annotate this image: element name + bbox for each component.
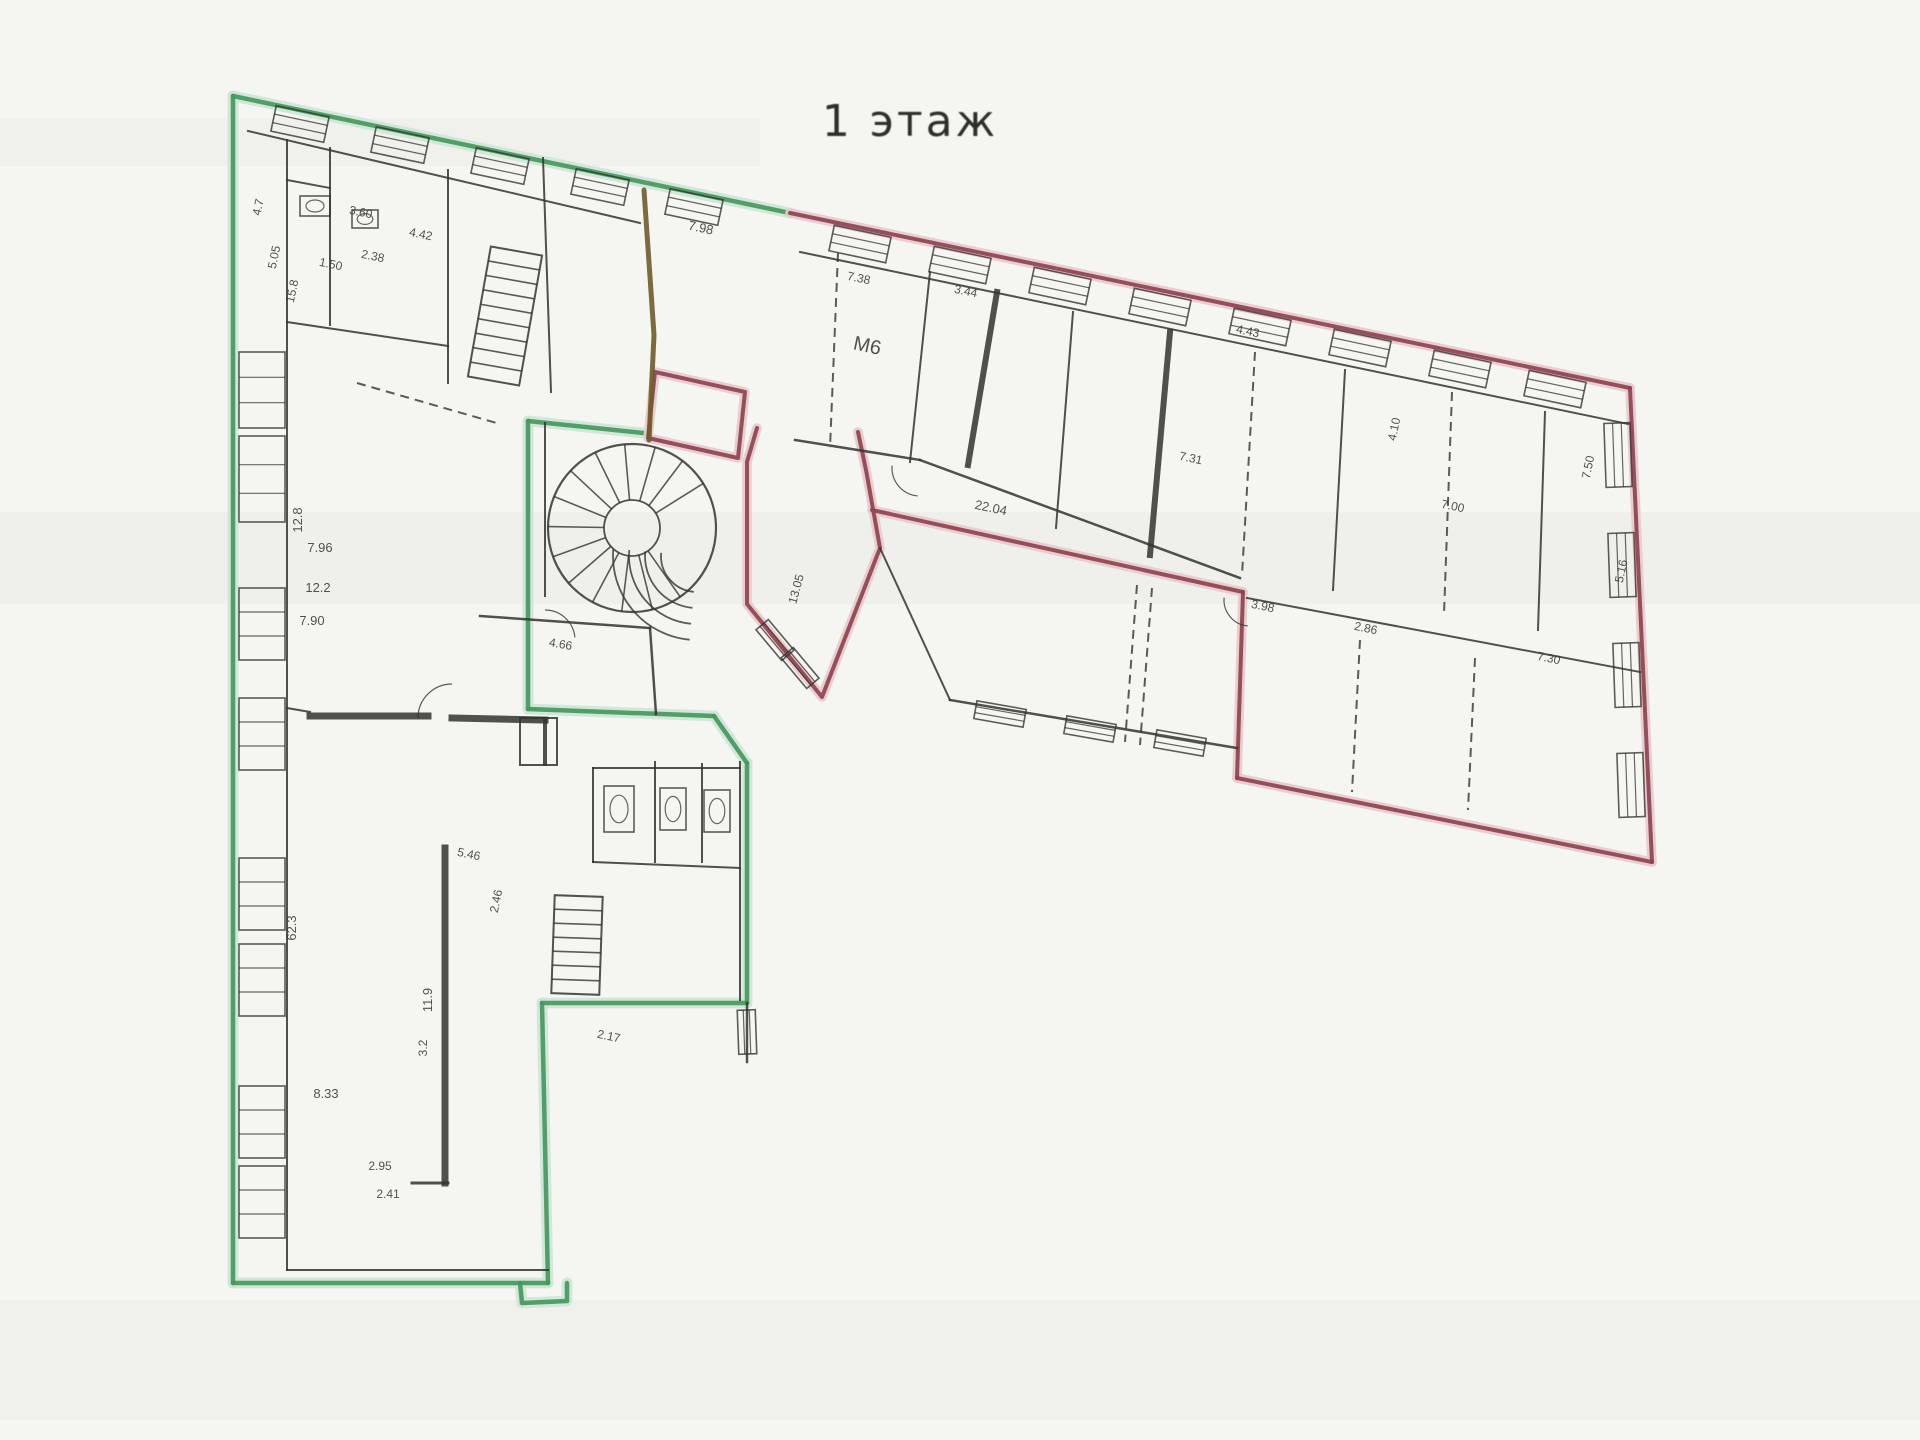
window-symbol — [1617, 753, 1645, 818]
window-symbol — [239, 698, 285, 770]
staircase — [468, 246, 542, 385]
dashed-wall-line — [830, 253, 838, 448]
dimension-label: 4.43 — [1235, 322, 1261, 341]
plumbing-fixture — [704, 790, 730, 832]
window-line — [239, 436, 285, 522]
plumbing-fixture-bowl — [610, 795, 628, 823]
window-line — [743, 1010, 745, 1054]
dimension-label: 4.66 — [548, 635, 574, 653]
wall-line — [287, 708, 310, 712]
wall-line — [593, 862, 740, 868]
plumbing-fixture — [300, 196, 330, 216]
stair-line — [476, 333, 527, 342]
window-line — [667, 206, 720, 217]
dimension-label: 15.8 — [283, 278, 302, 304]
spiral-tread — [640, 447, 655, 501]
window-symbol — [239, 1086, 285, 1158]
window-symbol — [239, 436, 285, 522]
stair-line — [552, 965, 600, 967]
window-line — [573, 186, 626, 197]
wall-line — [287, 322, 448, 346]
dimension-label: 3.2 — [416, 1039, 430, 1056]
dashed-wall-line — [357, 383, 500, 424]
stair-line — [481, 304, 532, 313]
stair-line — [553, 951, 601, 953]
dimension-label: 4.7 — [250, 197, 267, 217]
stair-line — [553, 937, 601, 939]
wall-line — [543, 158, 551, 392]
plumbing-fixture-bowl — [665, 796, 681, 821]
window-line — [239, 1166, 285, 1238]
dimension-label: 1.50 — [318, 255, 344, 274]
plan-layers: 4.75.0515.83.602.381.504.427.987.383.44М… — [0, 96, 1920, 1420]
red-boundary — [790, 213, 1630, 388]
stair-line — [470, 362, 521, 371]
dimension-label: 3.44 — [953, 282, 979, 301]
dimension-label: 12.2 — [305, 580, 330, 595]
wall-line — [910, 272, 930, 462]
plumbing-fixture — [660, 788, 686, 830]
floor-plan-page: 1 этаж 4.75.0515.83.602.381.504.427.987.… — [0, 0, 1920, 1440]
shaft-box — [520, 718, 557, 765]
plumbing-fixture-bowl — [306, 200, 324, 212]
window-line — [1634, 753, 1636, 817]
stair-line — [473, 348, 524, 357]
spiral-tread — [625, 444, 630, 500]
window-line — [239, 352, 285, 428]
dimension-label: 7.31 — [1178, 449, 1204, 468]
red-boundary-halo — [648, 372, 745, 458]
dimension-label: 2.41 — [376, 1187, 400, 1201]
dimension-label: 7.38 — [846, 269, 872, 288]
dimension-label: 2.17 — [596, 1027, 622, 1046]
wall-line — [950, 700, 1237, 748]
dimension-label: 11.9 — [420, 988, 435, 1012]
stair-line — [468, 246, 542, 385]
spiral-tread — [571, 471, 612, 509]
dimension-label: 7.98 — [687, 218, 715, 238]
window-symbol — [1613, 643, 1641, 708]
plumbing-fixture — [604, 786, 634, 832]
stair-line — [478, 319, 529, 328]
stair-line — [486, 275, 537, 284]
window-line — [749, 1010, 751, 1054]
floor-plan-drawing: 4.75.0515.83.602.381.504.427.987.383.44М… — [0, 0, 1920, 1440]
dimension-label: 7.96 — [307, 540, 332, 555]
door-swing-arc — [892, 466, 918, 496]
staircase — [551, 895, 602, 995]
stair-line — [552, 979, 600, 981]
plumbing-fixture-bowl — [709, 798, 725, 823]
dimension-label: 62.3 — [284, 915, 299, 940]
dimension-label: 5.05 — [265, 244, 284, 270]
dimension-label: М6 — [851, 332, 883, 359]
dimension-label: 7.50 — [1579, 454, 1598, 480]
window-symbol — [239, 352, 285, 428]
dimension-label: 5.46 — [456, 845, 482, 864]
dimension-label: 8.33 — [313, 1086, 338, 1101]
green-boundary — [714, 716, 747, 763]
spiral-tread — [595, 453, 620, 503]
door-swing-arc — [545, 610, 575, 637]
window-line — [239, 698, 285, 770]
window-line — [1630, 643, 1632, 707]
dashed-wall-line — [1468, 658, 1475, 810]
dashed-wall-line — [1125, 585, 1137, 742]
spiral-tread — [548, 527, 604, 528]
stair-line — [488, 261, 539, 270]
wall-line — [1056, 312, 1073, 528]
stair-line — [554, 909, 602, 911]
window-line — [239, 944, 285, 1016]
window-line — [239, 1086, 285, 1158]
window-line — [1617, 753, 1645, 818]
wall-line — [800, 252, 1628, 424]
window-line — [1622, 643, 1624, 707]
dashed-wall-line — [1352, 640, 1360, 792]
window-symbol — [1154, 730, 1206, 756]
wall-line — [287, 180, 330, 188]
dimension-label: 2.38 — [360, 247, 386, 266]
stair-line — [554, 923, 602, 925]
window-line — [1621, 423, 1623, 487]
scan-band — [0, 1300, 1920, 1420]
window-symbol — [239, 1166, 285, 1238]
wall-line — [650, 628, 656, 714]
window-line — [764, 623, 790, 654]
window-line — [1613, 423, 1615, 487]
dimension-label: 4.42 — [408, 225, 434, 244]
wall-line — [968, 292, 997, 465]
window-line — [1626, 753, 1628, 817]
olive-boundary — [644, 190, 654, 440]
dimension-label: 2.95 — [368, 1159, 392, 1173]
window-line — [1613, 643, 1641, 708]
dimension-label: 2.46 — [487, 888, 506, 914]
dimension-label: 7.30 — [1536, 649, 1562, 668]
window-line — [239, 858, 285, 930]
red-boundary — [1630, 388, 1652, 862]
window-line — [473, 165, 526, 176]
dimension-label: 12.8 — [290, 507, 305, 532]
window-symbol — [239, 858, 285, 930]
window-symbol — [239, 944, 285, 1016]
dimension-label: 4.10 — [1385, 416, 1404, 442]
stair-line — [483, 290, 534, 299]
window-line — [785, 654, 811, 685]
dashed-wall-line — [1140, 588, 1152, 745]
dimension-label: 7.90 — [299, 613, 324, 628]
red-boundary — [1237, 778, 1652, 862]
